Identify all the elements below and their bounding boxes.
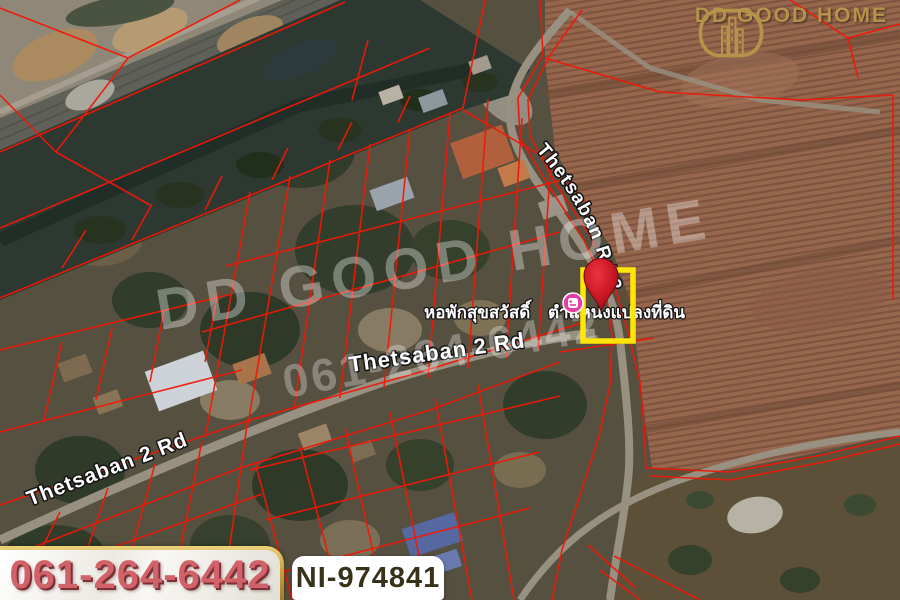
property-listing-image: Thetsaban Rd 2 Thetsaban 2 Rd Thetsaban … [0,0,900,600]
logo-monogram-icon [695,4,767,62]
phone-number: 061-264-6442 [9,553,270,598]
phone-banner: 061-264-6442 [0,546,284,600]
satellite-map: Thetsaban Rd 2 Thetsaban 2 Rd Thetsaban … [0,0,900,600]
lodging-icon [563,293,583,313]
listing-id-badge: NI-974841 [292,556,444,600]
brand-logo: DD GOOD HOME [695,4,888,28]
listing-id: NI-974841 [296,562,440,595]
